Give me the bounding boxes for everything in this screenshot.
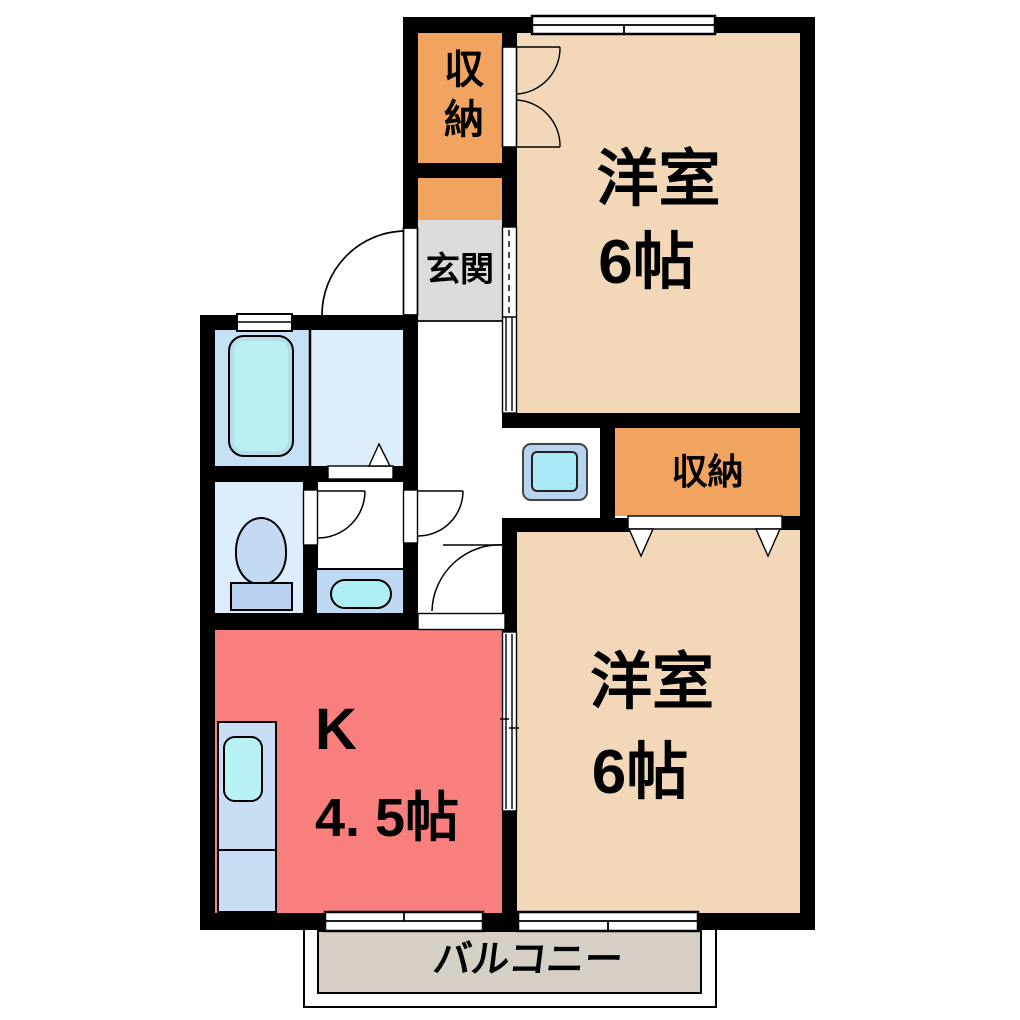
closet1-label: 収納 [418, 36, 502, 160]
washing-machine-pan [531, 451, 578, 492]
balcony-label: バルコニー [337, 938, 718, 982]
entrance-door [322, 228, 418, 315]
toilet [215, 482, 303, 613]
kitchen-name: K [276, 699, 396, 761]
kitchen-counter-divider [219, 849, 275, 851]
bathtub [228, 335, 294, 457]
wall [502, 413, 800, 428]
bedroom1-name: 洋室 [517, 147, 800, 213]
wall [502, 532, 517, 632]
wall [502, 17, 517, 47]
bedroom2-size: 6帖 [505, 740, 775, 806]
wall [600, 428, 615, 532]
hallway-west [418, 322, 502, 613]
wall [502, 518, 630, 532]
bedroom2-name: 洋室 [517, 650, 787, 716]
toilet-bowl [235, 517, 287, 585]
washing-machine-space [522, 443, 588, 501]
shoe-cabinet-area [418, 178, 502, 220]
room-bedroom2 [517, 528, 800, 913]
wall [502, 147, 517, 227]
wall [502, 811, 517, 930]
entrance-step-line [418, 320, 502, 322]
floorplan-canvas: 収納 玄関 洋室 6帖 収納 洋室 6帖 K 4. 5帖 バルコニー [0, 0, 1020, 1020]
wall [800, 17, 815, 930]
bedroom1-size: 6帖 [505, 230, 788, 296]
washbasin-counter [317, 568, 403, 613]
wall [403, 543, 418, 613]
wall [403, 17, 815, 33]
wall [403, 330, 418, 490]
wall [303, 466, 318, 630]
entrance-label: 玄関 [418, 220, 502, 320]
room-bedroom1 [517, 33, 800, 413]
kitchen-sink [223, 736, 263, 802]
wall [780, 516, 800, 530]
kitchen-size: 4. 5帖 [277, 787, 497, 849]
wall [200, 315, 418, 330]
toilet-tank [230, 582, 293, 611]
kitchen-counter [217, 721, 277, 913]
room-changing [310, 330, 403, 467]
wall [403, 163, 502, 178]
wall [403, 17, 418, 228]
closet2-label: 収納 [615, 428, 800, 516]
washbasin-sink [330, 579, 392, 609]
